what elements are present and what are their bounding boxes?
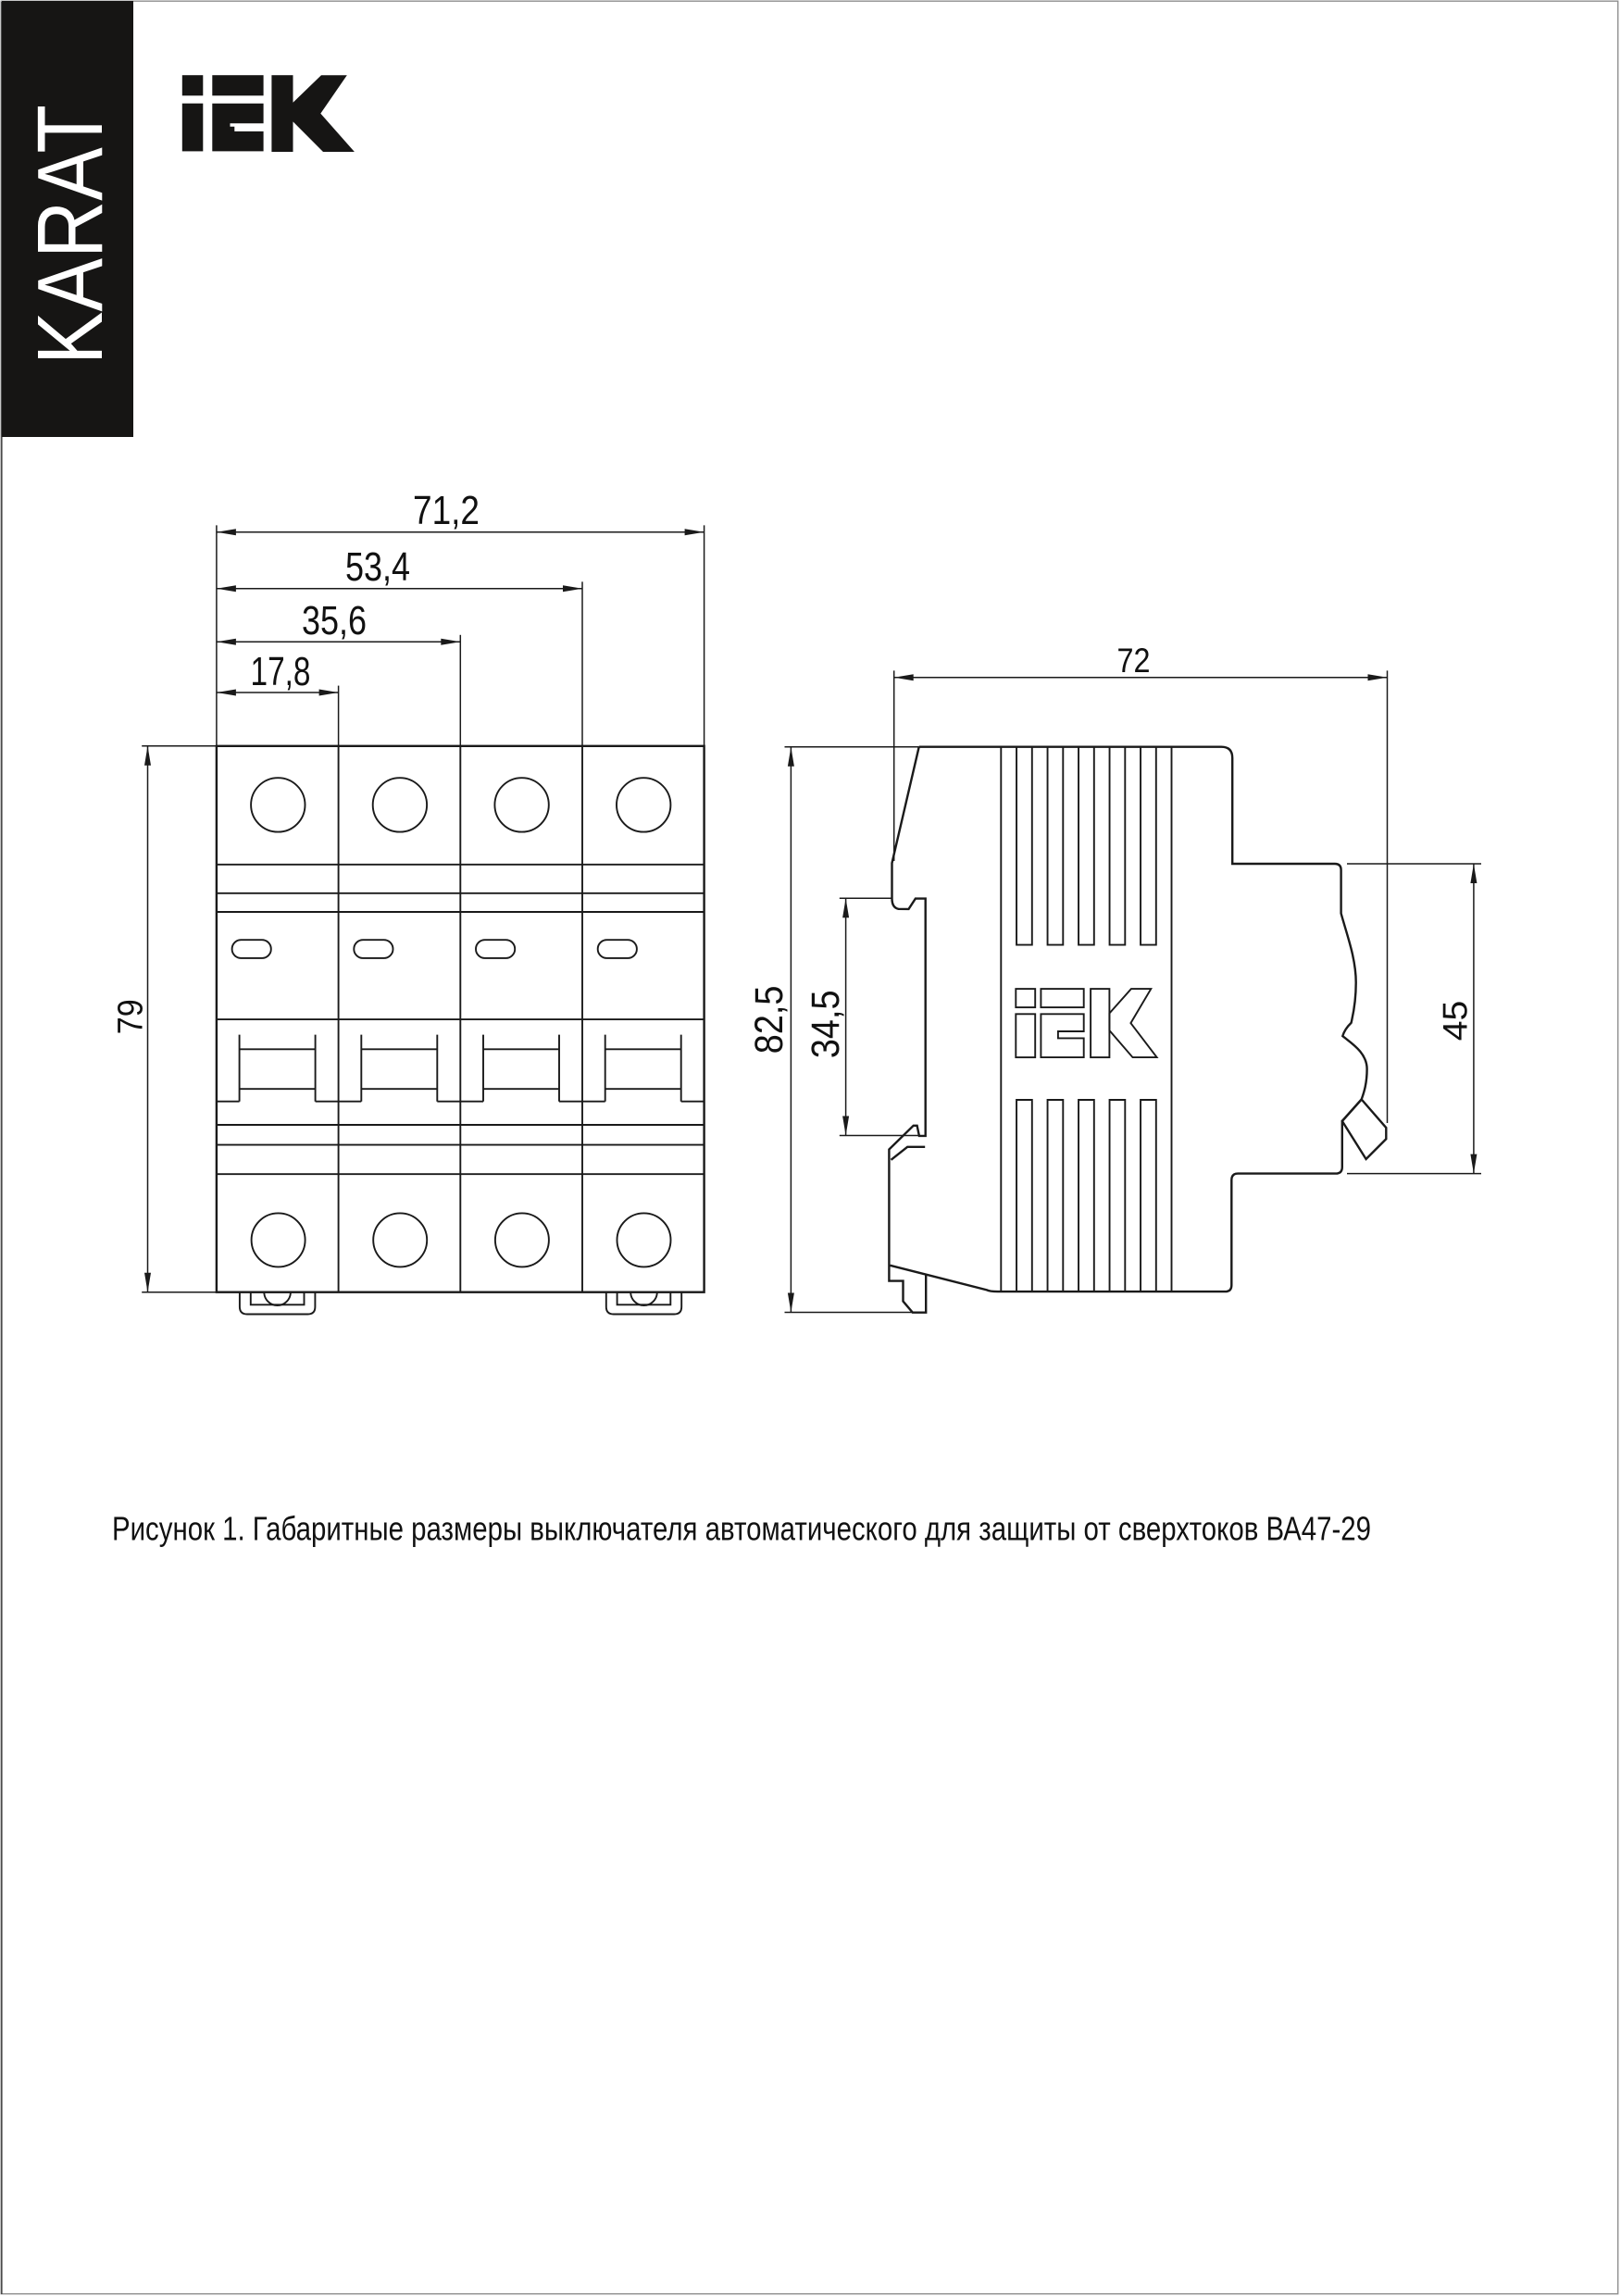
svg-text:35,6: 35,6: [302, 598, 367, 643]
svg-text:17,8: 17,8: [251, 649, 311, 694]
svg-text:71,2: 71,2: [413, 488, 480, 533]
svg-text:72: 72: [1117, 642, 1151, 680]
svg-text:34,5: 34,5: [804, 991, 848, 1059]
svg-text:45: 45: [1436, 1001, 1474, 1042]
svg-text:KARAT: KARAT: [19, 105, 122, 365]
svg-text:53,4: 53,4: [345, 544, 410, 590]
svg-text:82,5: 82,5: [747, 986, 792, 1054]
svg-text:79: 79: [112, 999, 151, 1034]
svg-text:Рисунок 1. Габаритные размеры: Рисунок 1. Габаритные размеры выключател…: [112, 1510, 1371, 1548]
